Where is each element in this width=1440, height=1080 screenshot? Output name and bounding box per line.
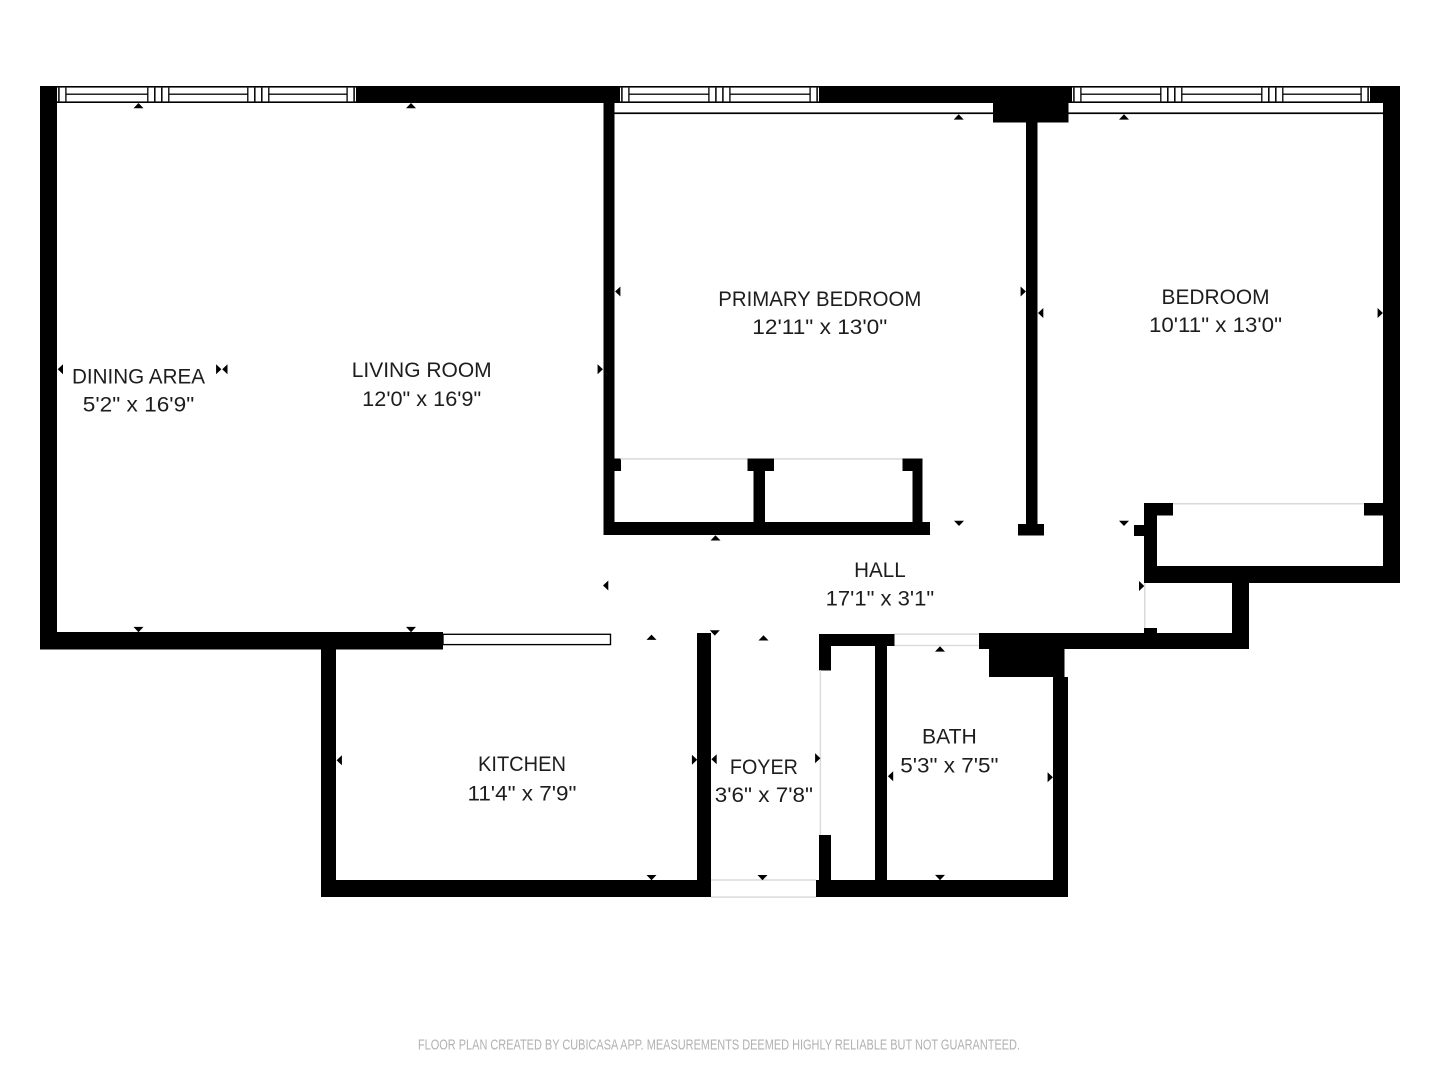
svg-text:KITCHEN: KITCHEN (478, 753, 566, 776)
svg-text:FOYER: FOYER (730, 756, 798, 779)
svg-text:12'0" x 16'9": 12'0" x 16'9" (362, 388, 481, 411)
svg-text:LIVING ROOM: LIVING ROOM (352, 359, 492, 382)
svg-text:HALL: HALL (854, 559, 906, 582)
svg-text:11'4" x 7'9": 11'4" x 7'9" (468, 783, 577, 806)
svg-text:FLOOR PLAN CREATED BY CUBICASA: FLOOR PLAN CREATED BY CUBICASA APP. MEAS… (418, 1038, 1020, 1054)
svg-text:5'2" x 16'9": 5'2" x 16'9" (83, 394, 195, 417)
svg-text:PRIMARY BEDROOM: PRIMARY BEDROOM (718, 288, 921, 311)
svg-text:17'1" x 3'1": 17'1" x 3'1" (826, 587, 935, 610)
svg-text:DINING AREA: DINING AREA (72, 366, 205, 389)
svg-text:BEDROOM: BEDROOM (1162, 286, 1270, 309)
svg-text:BATH: BATH (922, 725, 977, 748)
svg-text:3'6" x 7'8": 3'6" x 7'8" (715, 784, 813, 807)
svg-text:5'3" x 7'5": 5'3" x 7'5" (900, 754, 998, 777)
svg-text:10'11" x 13'0": 10'11" x 13'0" (1149, 314, 1282, 337)
svg-text:12'11" x 13'0": 12'11" x 13'0" (752, 316, 887, 339)
